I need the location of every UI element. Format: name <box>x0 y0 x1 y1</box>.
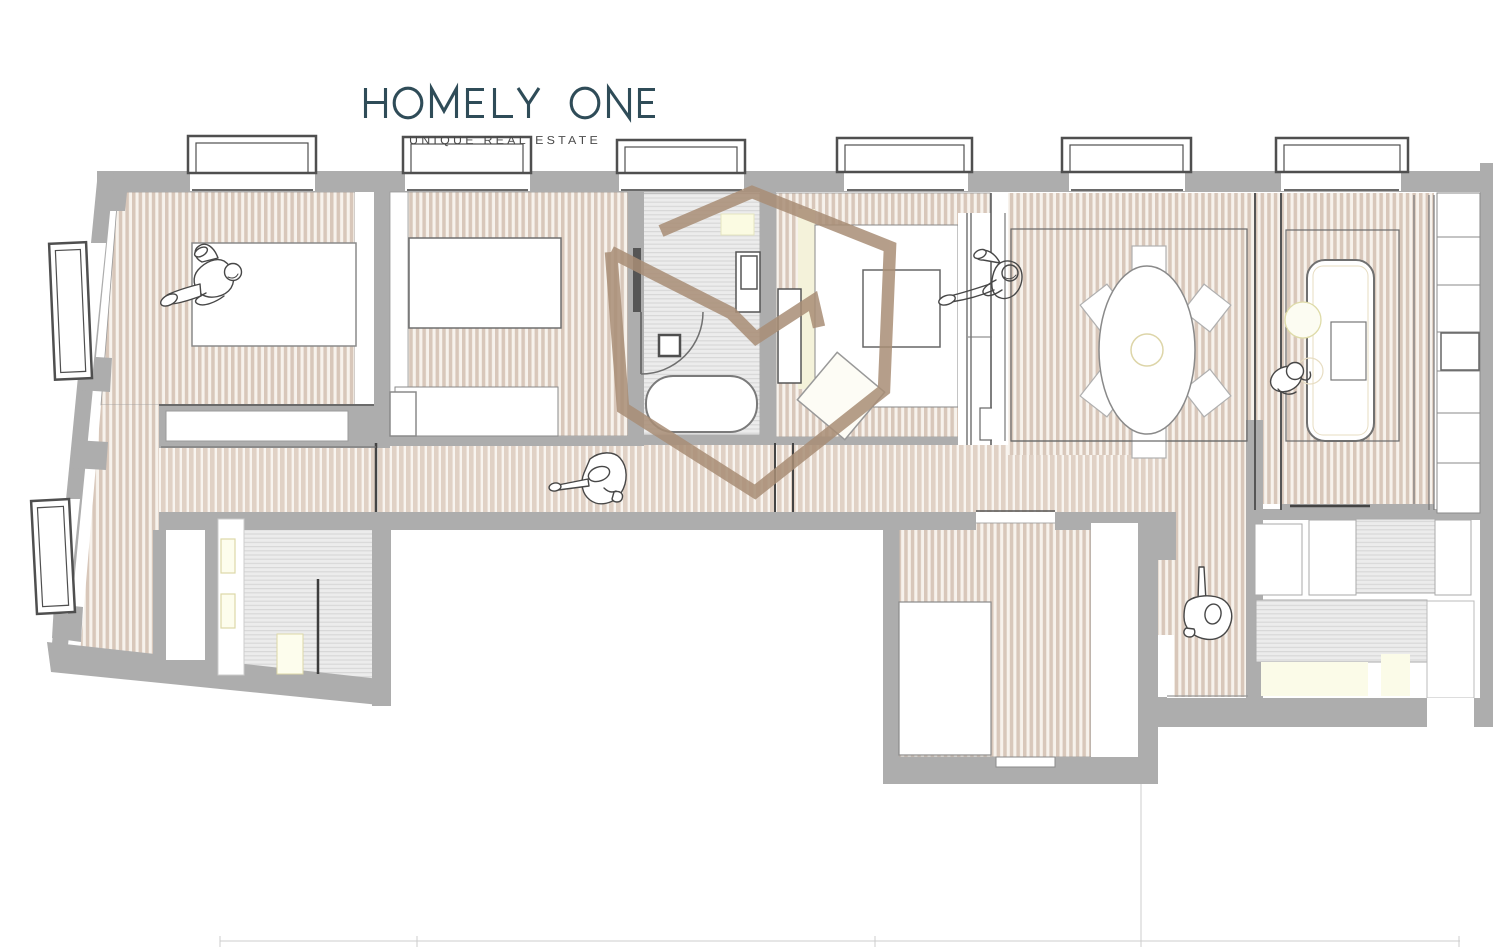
svg-text:UNIQUE REAL ESTATE: UNIQUE REAL ESTATE <box>409 135 601 147</box>
